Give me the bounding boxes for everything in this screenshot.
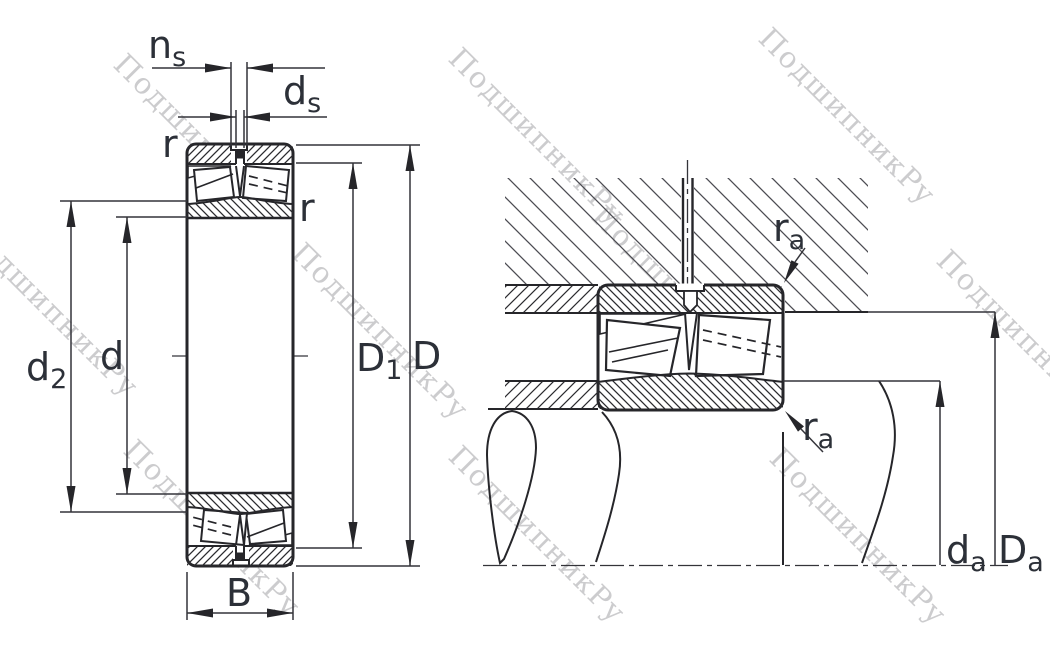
- shaft-profile-left: [596, 412, 620, 562]
- housing-shoulder: [505, 285, 598, 313]
- shaft-shoulder: [488, 381, 598, 409]
- label-groove-width-ns: ns: [148, 23, 186, 73]
- mounted-outer-ring: [598, 284, 783, 314]
- roller-left: [606, 320, 680, 376]
- roller-right: [696, 315, 770, 376]
- bearing-drawing-svg: ПодшипникРу ПодшипникРу ПодшипникРу Подш…: [0, 0, 1050, 650]
- mounted-inner-ring: [598, 374, 783, 410]
- label-chamfer-r-outer: r: [162, 122, 178, 166]
- label-housing-abutment-Da: Da: [998, 528, 1044, 578]
- left-view-bearing-section: [172, 144, 308, 566]
- label-shoulder-diameter-d2: d2: [26, 345, 67, 395]
- watermark-layer: ПодшипникРу ПодшипникРу ПодшипникРу Подш…: [0, 21, 1050, 632]
- watermark-text: ПодшипникРу: [930, 243, 1050, 434]
- label-fillet-ra-shaft: ra: [802, 405, 834, 455]
- lubrication-hole: [237, 151, 244, 159]
- label-bore-diameter-d: d: [100, 334, 124, 378]
- lubrication-hole: [237, 553, 244, 561]
- label-chamfer-r-inner: r: [299, 186, 315, 230]
- label-outside-diameter-D: D: [412, 334, 441, 378]
- label-hole-diameter-ds: ds: [283, 69, 321, 119]
- roller-left: [194, 167, 234, 201]
- label-width-B: B: [226, 571, 252, 615]
- right-view-mounting-section: [483, 160, 1008, 566]
- label-shaft-abutment-da: da: [946, 528, 987, 578]
- technical-drawing-page: ПодшипникРу ПодшипникРу ПодшипникРу Подш…: [0, 0, 1050, 650]
- watermark-text: ПодшипникРу: [763, 441, 954, 632]
- watermark-text: ПодшипникРу: [285, 236, 476, 427]
- roller-right: [246, 510, 286, 544]
